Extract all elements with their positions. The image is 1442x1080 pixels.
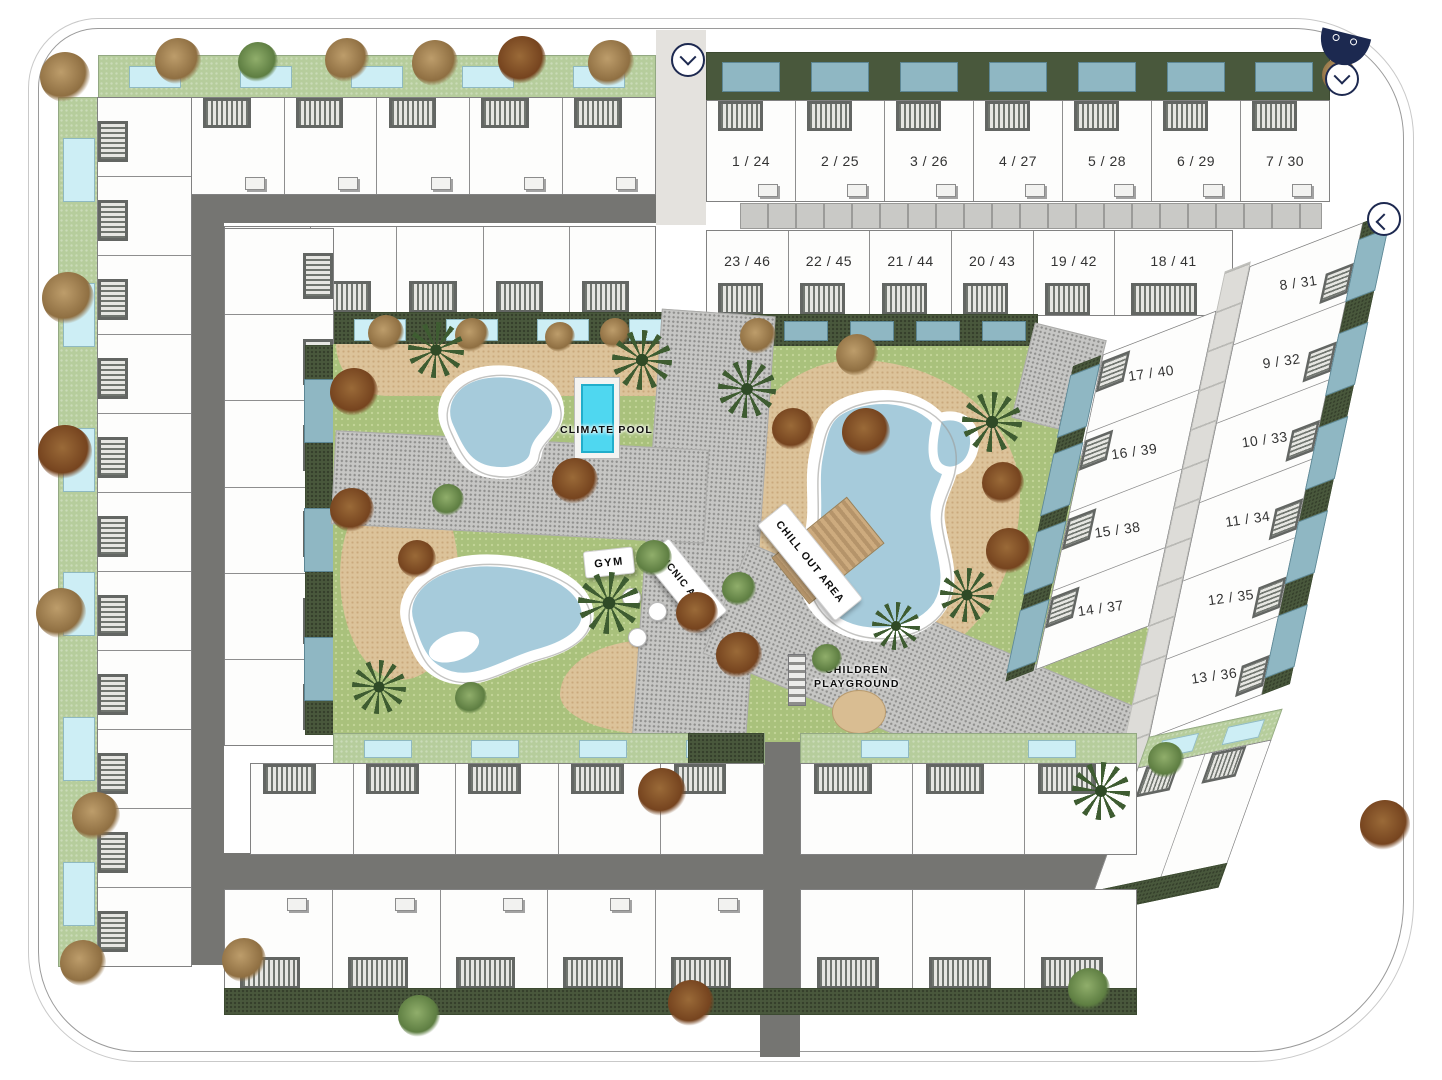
unit-block: [192, 98, 285, 194]
unit-block: [98, 98, 191, 177]
private-pool: [63, 572, 95, 636]
unit-block[interactable]: 19 / 42: [1034, 231, 1116, 315]
pergola-icon: [1252, 101, 1298, 131]
private-pool: [784, 321, 828, 341]
climate-pool: [581, 384, 614, 453]
pergola-icon: [98, 516, 128, 557]
unit-block: [98, 651, 191, 730]
private-pool: [722, 62, 780, 92]
pergola-icon: [98, 279, 128, 320]
unit-block: [563, 98, 655, 194]
garage-icon: [1114, 184, 1134, 197]
unit-block[interactable]: 1 / 24: [707, 101, 796, 201]
pergola-icon: [98, 753, 128, 794]
unit-block: [570, 227, 655, 313]
private-pool: [989, 62, 1047, 92]
private-pool: [63, 428, 95, 492]
pergola-icon: [563, 957, 623, 989]
pergola-icon: [1163, 101, 1209, 131]
hedge-bottom-edge: [224, 988, 1137, 1015]
private-pool: [304, 379, 336, 443]
unit-block[interactable]: 23 / 46: [707, 231, 789, 315]
unit-row-d-left: [224, 889, 764, 990]
pergola-icon: [882, 283, 927, 315]
garage-icon: [718, 898, 738, 911]
hedge-amenity-top: [333, 312, 702, 347]
unit-block: [801, 764, 913, 854]
unit-block: [1025, 764, 1136, 854]
unit-number: 2 / 25: [796, 153, 884, 169]
private-pool: [240, 66, 292, 88]
garage-icon: [610, 898, 630, 911]
private-pool: [351, 66, 403, 88]
unit-block: [98, 730, 191, 809]
unit-block[interactable]: 20 / 43: [952, 231, 1034, 315]
unit-block: [484, 227, 570, 313]
logo-dot-icon: [1349, 38, 1357, 46]
garage-icon: [287, 898, 307, 911]
pergola-icon: [807, 101, 853, 131]
garden-left-strip: [58, 97, 99, 967]
pergola-icon: [800, 283, 845, 315]
garage-icon: [1203, 184, 1223, 197]
hedge-left-amenity: [305, 345, 335, 735]
unit-block: [913, 890, 1025, 989]
pergola-icon: [98, 911, 128, 952]
unit-block: [377, 98, 470, 194]
private-pool: [446, 319, 498, 341]
pergola-icon: [98, 595, 128, 636]
private-pool: [1255, 62, 1313, 92]
unit-number: 3 / 26: [885, 153, 973, 169]
unit-number: 6 / 29: [1152, 153, 1240, 169]
chevron-down-icon: [1334, 68, 1351, 85]
climate-pool-label: CLIMATE POOL: [560, 424, 653, 436]
site-plan: 1 / 242 / 253 / 264 / 275 / 286 / 297 / …: [0, 0, 1442, 1080]
pergola-icon: [926, 764, 984, 794]
unit-block: [98, 809, 191, 888]
pergola-icon: [98, 358, 128, 399]
private-pool: [537, 319, 589, 341]
garage-icon: [395, 898, 415, 911]
logo-dot-icon: [1332, 33, 1340, 41]
pergola-icon: [1041, 957, 1103, 989]
unit-block: [251, 764, 354, 854]
pergola-icon: [1131, 283, 1196, 315]
road-bottom-horizontal: [190, 853, 1135, 889]
private-pool: [900, 62, 958, 92]
road-top-horizontal: [190, 193, 690, 223]
garage-icon: [338, 177, 358, 190]
private-pool: [916, 321, 960, 341]
pergola-icon: [718, 283, 763, 315]
garage-icon: [758, 184, 778, 197]
garage-icon: [616, 177, 636, 190]
private-pool: [63, 862, 95, 926]
pergola-icon: [963, 283, 1008, 315]
unit-block: [225, 890, 333, 989]
picnic-table-icon: [622, 588, 641, 607]
pergola-icon: [98, 121, 128, 162]
playground-icon: [788, 654, 806, 706]
pergola-icon: [1038, 764, 1096, 794]
unit-block: [225, 229, 333, 315]
hedge-bottom-center: [688, 733, 764, 765]
garage-icon: [1292, 184, 1312, 197]
unit-block[interactable]: 22 / 45: [789, 231, 871, 315]
unit-block[interactable]: 3 / 26: [885, 101, 974, 201]
private-pool: [471, 740, 519, 758]
picnic-table-icon: [648, 602, 667, 621]
unit-block[interactable]: 18 / 41: [1115, 231, 1232, 315]
chevron-left-icon: [1376, 213, 1393, 230]
private-pool: [129, 66, 181, 88]
unit-block: [661, 764, 763, 854]
unit-block: [98, 414, 191, 493]
unit-column-left-a: [97, 97, 192, 967]
pergola-icon: [98, 674, 128, 715]
private-pool: [811, 62, 869, 92]
pergola-icon: [303, 253, 333, 299]
road-left-vertical: [190, 193, 224, 965]
pergola-icon: [674, 764, 727, 794]
unit-block: [98, 335, 191, 414]
unit-number: 7 / 30: [1241, 153, 1329, 169]
pergola-icon: [203, 98, 251, 128]
unit-block[interactable]: 6 / 29: [1152, 101, 1241, 201]
unit-row-c-right: [800, 763, 1137, 855]
unit-block: [354, 764, 457, 854]
unit-number: 23 / 46: [707, 253, 788, 269]
pergola-icon: [574, 98, 622, 128]
unit-row-23-46-to-18-41: 23 / 4622 / 4521 / 4420 / 4319 / 4218 / …: [706, 230, 1233, 316]
unit-block: [98, 177, 191, 256]
garden-top-right: [706, 52, 1330, 102]
unit-row-d-right: [800, 889, 1137, 990]
pergola-icon: [296, 98, 344, 128]
gym-sign: GYM: [583, 546, 636, 578]
unit-number: 22 / 45: [789, 253, 870, 269]
pergola-icon: [263, 764, 316, 794]
lagoon-pool-upper-left: [418, 358, 570, 484]
playground-sand-circle: [832, 690, 886, 734]
lagoon-pool-lower-left: [388, 543, 600, 695]
unit-number: 19 / 42: [1034, 253, 1115, 269]
unit-number: 18 / 41: [1115, 253, 1232, 269]
pergola-icon: [468, 764, 521, 794]
pergola-icon: [985, 101, 1031, 131]
private-pool: [354, 319, 406, 341]
pergola-icon: [582, 281, 630, 313]
unit-block: [548, 890, 656, 989]
unit-block: [1025, 890, 1136, 989]
garage-icon: [503, 898, 523, 911]
private-pool: [1078, 62, 1136, 92]
pergola-icon: [496, 281, 544, 313]
private-pool: [63, 717, 95, 781]
children-playground-label: CHILDREN PLAYGROUND: [814, 664, 900, 691]
private-pool: [462, 66, 514, 88]
private-pool: [579, 740, 627, 758]
unit-block[interactable]: 21 / 44: [870, 231, 952, 315]
unit-block: [98, 888, 191, 966]
unit-block: [333, 890, 441, 989]
pergola-icon: [571, 764, 624, 794]
pergola-icon: [1074, 101, 1120, 131]
pergola-icon: [1045, 283, 1090, 315]
pergola-icon: [929, 957, 991, 989]
pergola-icon: [98, 200, 128, 241]
private-pool: [1028, 740, 1076, 758]
private-pool: [573, 66, 625, 88]
private-pool: [982, 321, 1026, 341]
unit-block: [98, 493, 191, 572]
private-pool: [1167, 62, 1225, 92]
unit-block: [98, 256, 191, 335]
entrance-arrow-right: [1367, 202, 1401, 236]
garage-icon: [847, 184, 867, 197]
unit-block: [656, 890, 763, 989]
garage-icon: [524, 177, 544, 190]
pergola-icon: [98, 832, 128, 873]
picnic-table-icon: [628, 628, 647, 647]
chevron-down-icon: [680, 49, 697, 66]
unit-block: [559, 764, 662, 854]
pergola-icon: [896, 101, 942, 131]
unit-block: [913, 764, 1025, 854]
garden-bottom-right: [800, 733, 1137, 765]
private-pool: [304, 637, 336, 701]
garage-icon: [1025, 184, 1045, 197]
unit-block[interactable]: 4 / 27: [974, 101, 1063, 201]
private-pool: [850, 321, 894, 341]
unit-number: 1 / 24: [707, 153, 795, 169]
pergola-icon: [98, 437, 128, 478]
unit-block[interactable]: 7 / 30: [1241, 101, 1329, 201]
private-pool: [63, 138, 95, 202]
unit-block: [285, 98, 378, 194]
garage-icon: [431, 177, 451, 190]
unit-block: [98, 572, 191, 651]
carport-band: [740, 203, 1322, 229]
pergola-icon: [671, 957, 731, 989]
pergola-icon: [409, 281, 457, 313]
garage-icon: [245, 177, 265, 190]
pergola-icon: [366, 764, 419, 794]
pergola-icon: [389, 98, 437, 128]
private-pool: [63, 283, 95, 347]
unit-number: 21 / 44: [870, 253, 951, 269]
private-pool: [364, 740, 412, 758]
entrance-arrow-top-right: [1325, 62, 1359, 96]
unit-number: 4 / 27: [974, 153, 1062, 169]
entrance-arrow-top: [671, 43, 705, 77]
unit-number: 5 / 28: [1063, 153, 1151, 169]
unit-row-1-24-to-7-30: 1 / 242 / 253 / 264 / 275 / 286 / 297 / …: [706, 100, 1330, 202]
children-line1: CHILDREN: [814, 664, 900, 678]
unit-block[interactable]: 5 / 28: [1063, 101, 1152, 201]
pergola-icon: [348, 957, 408, 989]
pergola-icon: [718, 101, 764, 131]
unit-block: [441, 890, 549, 989]
unit-block[interactable]: 2 / 25: [796, 101, 885, 201]
unit-row-c-left: [250, 763, 764, 855]
garage-icon: [936, 184, 956, 197]
unit-block: [470, 98, 563, 194]
pergola-icon: [240, 957, 300, 989]
pergola-icon: [814, 764, 872, 794]
unit-block: [456, 764, 559, 854]
garden-top-left: [98, 55, 656, 99]
unit-number: 20 / 43: [952, 253, 1033, 269]
pergola-icon: [817, 957, 879, 989]
private-pool: [861, 740, 909, 758]
unit-block: [801, 890, 913, 989]
pergola-icon: [456, 957, 516, 989]
pergola-icon: [481, 98, 529, 128]
unit-block: [397, 227, 483, 313]
